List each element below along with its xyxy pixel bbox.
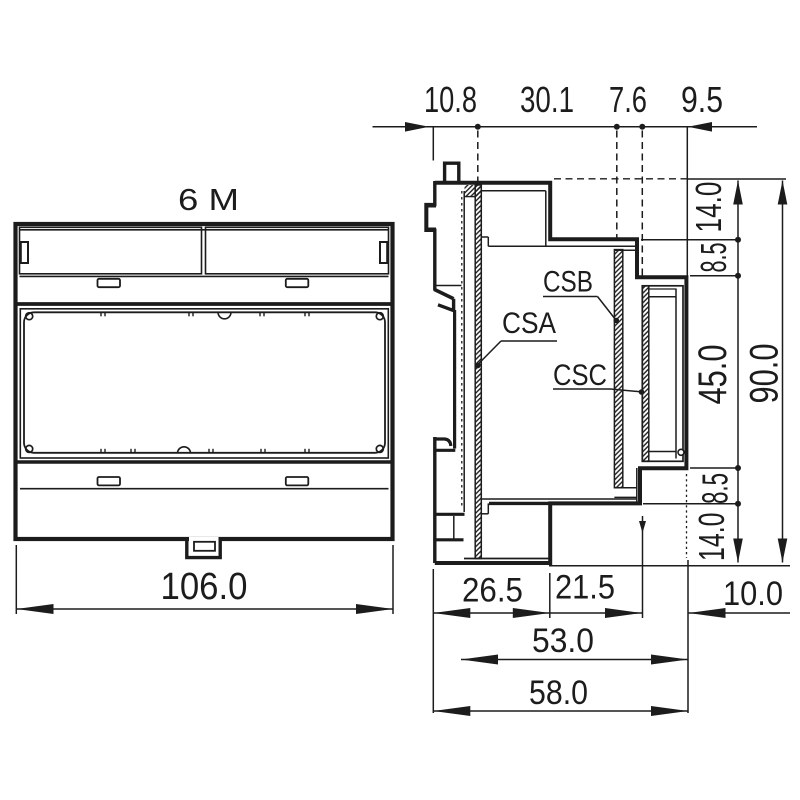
svg-text:10.8: 10.8 bbox=[424, 79, 477, 120]
svg-text:14.0: 14.0 bbox=[688, 182, 729, 233]
svg-text:10.0: 10.0 bbox=[723, 575, 783, 613]
svg-text:CSA: CSA bbox=[502, 307, 556, 340]
svg-text:21.5: 21.5 bbox=[555, 569, 615, 607]
svg-text:45.0: 45.0 bbox=[691, 345, 735, 405]
svg-text:CSC: CSC bbox=[553, 359, 607, 392]
svg-text:6 M: 6 M bbox=[178, 182, 239, 217]
svg-text:7.6: 7.6 bbox=[609, 79, 647, 120]
svg-text:26.5: 26.5 bbox=[462, 572, 523, 610]
svg-text:53.0: 53.0 bbox=[532, 622, 594, 660]
svg-text:58.0: 58.0 bbox=[529, 674, 588, 712]
svg-text:30.1: 30.1 bbox=[520, 79, 574, 120]
svg-text:14.0: 14.0 bbox=[691, 513, 732, 562]
svg-text:9.5: 9.5 bbox=[681, 79, 723, 120]
svg-text:8.5: 8.5 bbox=[695, 473, 736, 504]
svg-text:106.0: 106.0 bbox=[161, 566, 248, 608]
svg-text:CSB: CSB bbox=[543, 266, 593, 299]
svg-text:90.0: 90.0 bbox=[743, 344, 787, 404]
svg-text:8.5: 8.5 bbox=[693, 243, 734, 273]
